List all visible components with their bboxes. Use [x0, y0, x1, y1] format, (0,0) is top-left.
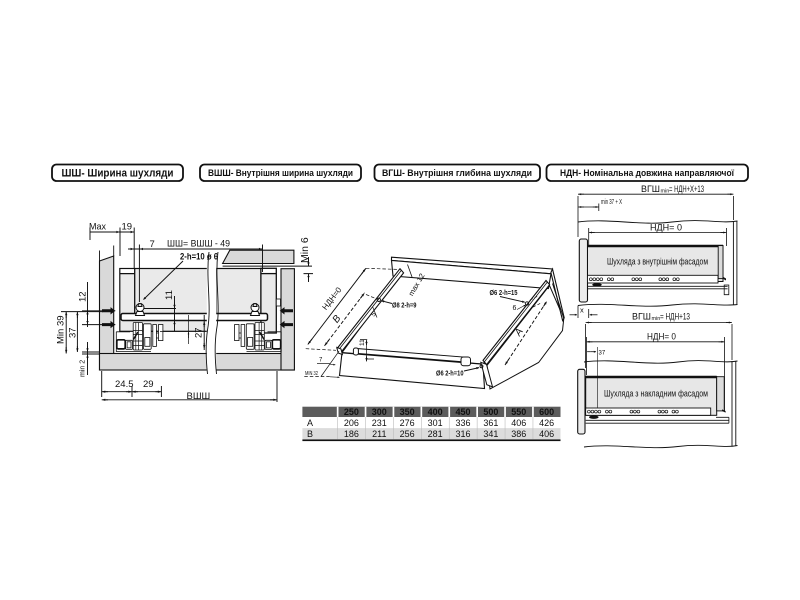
svg-text:ШШ- Ширина шухляди: ШШ- Ширина шухляди — [62, 168, 174, 180]
svg-text:37: 37 — [68, 327, 79, 338]
svg-text:341: 341 — [483, 429, 498, 439]
svg-text:186: 186 — [344, 429, 359, 439]
svg-text:600: 600 — [539, 407, 554, 417]
svg-text:min 37 + X: min 37 + X — [601, 199, 622, 206]
svg-text:ВГШ: ВГШ — [641, 184, 660, 195]
svg-text:ШШ= ВШШ - 49: ШШ= ВШШ - 49 — [167, 239, 230, 250]
svg-text:250: 250 — [344, 407, 359, 417]
svg-text:406: 406 — [539, 429, 554, 439]
svg-text:ВШШ- Внутрішня ширина шухляди: ВШШ- Внутрішня ширина шухляди — [208, 168, 353, 178]
svg-text:276: 276 — [400, 418, 415, 428]
svg-text:24.5: 24.5 — [115, 379, 134, 390]
svg-text:231: 231 — [372, 418, 387, 428]
svg-text:27: 27 — [194, 327, 205, 338]
svg-text:7: 7 — [150, 239, 155, 250]
svg-text:350: 350 — [400, 407, 415, 417]
svg-text:min 2: min 2 — [80, 360, 87, 377]
svg-text:12: 12 — [78, 291, 89, 302]
svg-text:11: 11 — [359, 339, 366, 346]
svg-text:19: 19 — [122, 222, 133, 233]
svg-text:450: 450 — [455, 407, 470, 417]
svg-text:ВШШ: ВШШ — [187, 391, 211, 402]
svg-text:206: 206 — [344, 418, 359, 428]
svg-text:НДН= 0: НДН= 0 — [650, 223, 682, 234]
svg-text:Ø8 2-h=9: Ø8 2-h=9 — [392, 300, 417, 309]
svg-text:426: 426 — [539, 418, 554, 428]
svg-text:= НДН+13: = НДН+13 — [660, 312, 690, 323]
svg-text:406: 406 — [511, 418, 526, 428]
svg-text:A: A — [307, 418, 313, 428]
svg-text:B: B — [307, 429, 313, 439]
svg-text:500: 500 — [483, 407, 498, 417]
svg-text:Max: Max — [89, 222, 106, 233]
svg-text:ВГШ: ВГШ — [632, 312, 651, 323]
svg-text:6: 6 — [513, 305, 517, 312]
svg-text:Min 39: Min 39 — [56, 315, 67, 344]
svg-text:386: 386 — [511, 429, 526, 439]
svg-text:361: 361 — [483, 418, 498, 428]
svg-text:НДН= 0: НДН= 0 — [647, 331, 676, 342]
svg-text:256: 256 — [400, 429, 415, 439]
svg-text:336: 336 — [455, 418, 470, 428]
svg-text:Шухляда з накладним фасадом: Шухляда з накладним фасадом — [604, 388, 708, 398]
svg-text:x: x — [580, 306, 584, 315]
svg-text:= НДН+X+13: = НДН+X+13 — [669, 184, 704, 195]
svg-text:29: 29 — [143, 379, 154, 390]
svg-text:550: 550 — [511, 407, 526, 417]
svg-text:Шухляда з внутрішнім фасадом: Шухляда з внутрішнім фасадом — [607, 256, 708, 266]
svg-text:MIN 32: MIN 32 — [305, 371, 318, 377]
svg-text:11: 11 — [164, 290, 175, 300]
svg-text:2-h=10 ø 6: 2-h=10 ø 6 — [180, 252, 218, 262]
svg-text:400: 400 — [428, 407, 443, 417]
svg-text:Ø6 2-h=15: Ø6 2-h=15 — [490, 288, 518, 297]
svg-text:НДН- Номінальна довжина направ: НДН- Номінальна довжина направляючої — [560, 168, 734, 178]
svg-text:Ø6 2-h=10: Ø6 2-h=10 — [436, 368, 464, 377]
svg-text:316: 316 — [455, 429, 470, 439]
svg-text:ВГШ- Внутрішня глибина шухляди: ВГШ- Внутрішня глибина шухляди — [382, 168, 532, 178]
svg-text:300: 300 — [372, 407, 387, 417]
svg-text:37: 37 — [599, 351, 606, 357]
svg-text:281: 281 — [428, 429, 443, 439]
svg-text:211: 211 — [372, 429, 386, 439]
svg-text:Min 6: Min 6 — [299, 237, 311, 263]
svg-text:301: 301 — [428, 418, 443, 428]
